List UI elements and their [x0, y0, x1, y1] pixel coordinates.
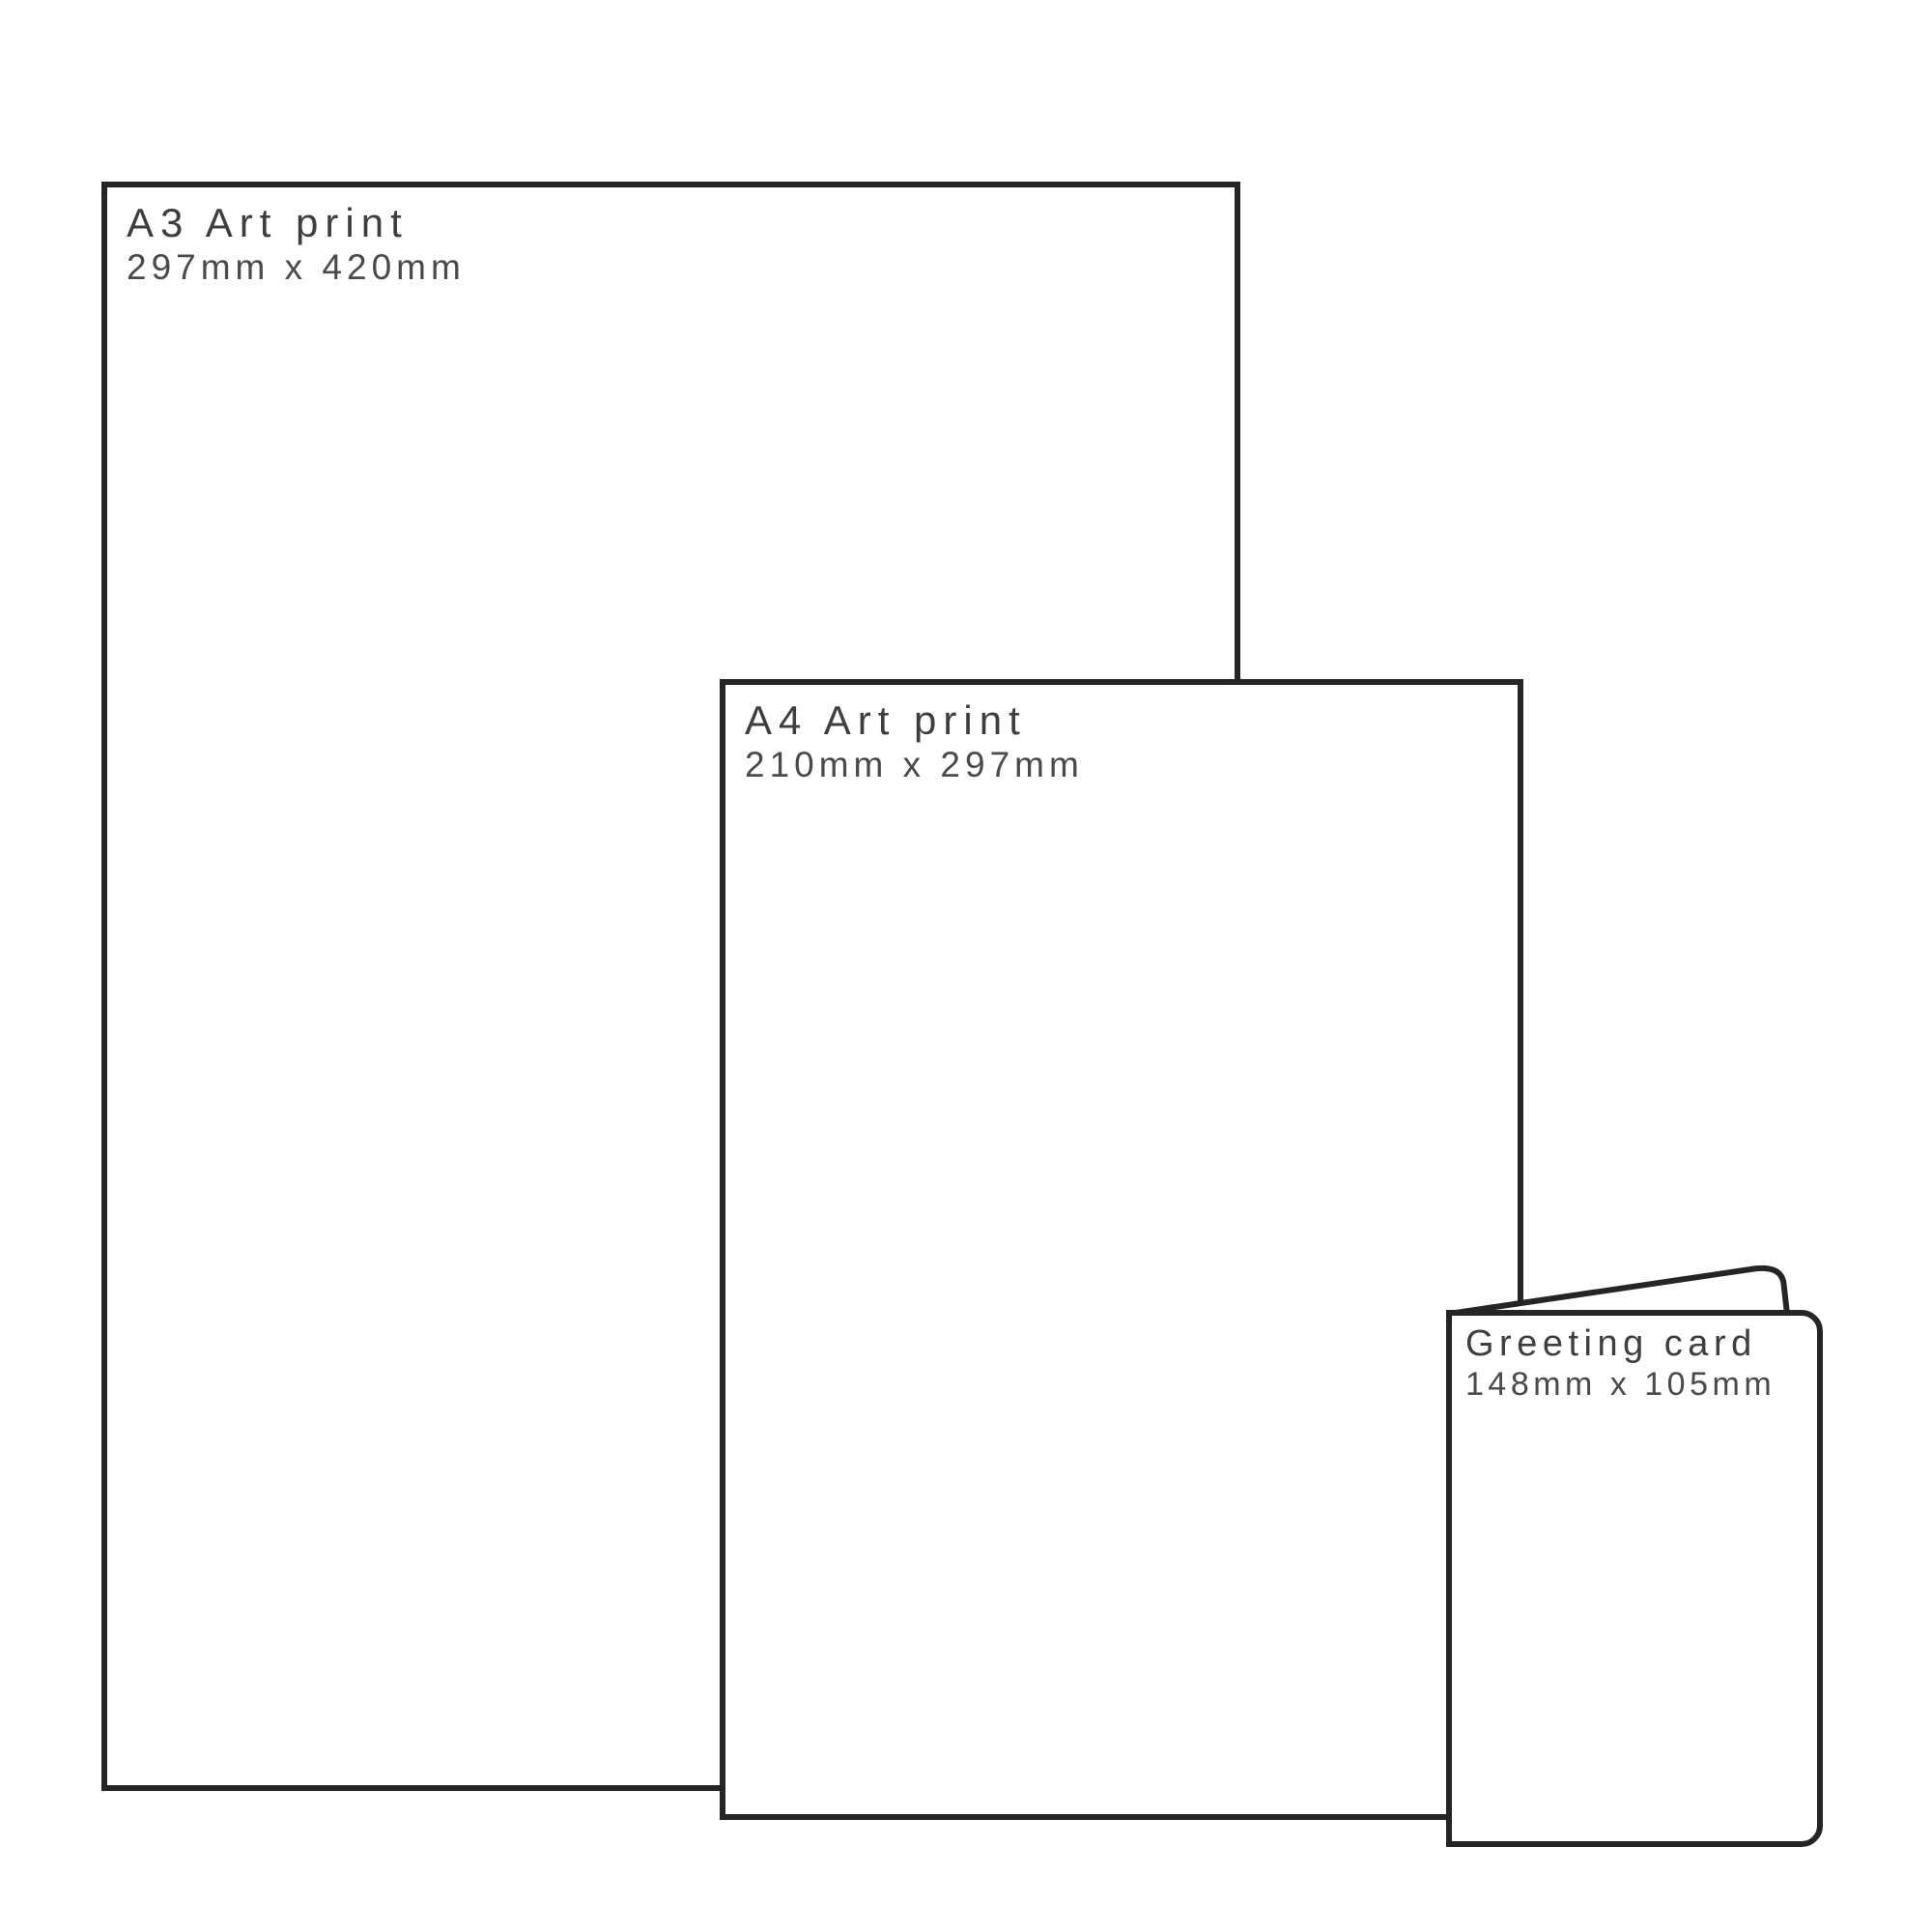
- greeting-card-label: Greeting card 148mm x 105mm: [1452, 1316, 1817, 1403]
- greeting-card-title: Greeting card: [1465, 1322, 1817, 1366]
- a4-label: A4 Art print 210mm x 297mm: [725, 685, 1518, 784]
- a3-title: A3 Art print: [127, 199, 1235, 247]
- a3-dimensions: 297mm x 420mm: [127, 247, 1235, 287]
- a4-title: A4 Art print: [745, 696, 1518, 745]
- greeting-card-front-panel: Greeting card 148mm x 105mm: [1446, 1310, 1823, 1847]
- a4-dimensions: 210mm x 297mm: [745, 745, 1518, 784]
- size-comparison-diagram: A3 Art print 297mm x 420mm A4 Art print …: [0, 0, 1932, 1932]
- a4-sheet: A4 Art print 210mm x 297mm: [720, 679, 1523, 1820]
- greeting-card-dimensions: 148mm x 105mm: [1465, 1366, 1817, 1403]
- a3-label: A3 Art print 297mm x 420mm: [107, 187, 1235, 287]
